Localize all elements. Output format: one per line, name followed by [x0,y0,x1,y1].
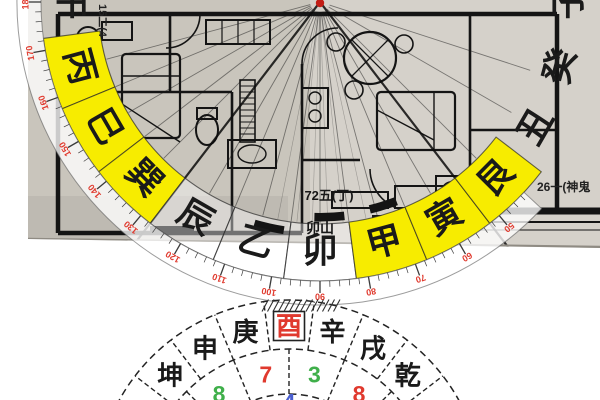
scene: 午丙巳巽辰乙卯甲寅艮丑癸子 18017016015014013012011010… [0,0,600,400]
ring-mountain-char: 子 [548,0,589,20]
chart-mountain-char: 坤 [157,361,183,391]
chart-mountain-char: 乾 [395,361,421,391]
luopan-floorplan-figure: 午丙巳巽辰乙卯甲寅艮丑癸子 18017016015014013012011010… [0,0,600,400]
degree-label: 80 [365,286,377,298]
chart-mountain-char: 辛 [319,317,345,348]
left-wall-note: 15二(4 [96,4,108,38]
star-number: 8 [213,381,226,400]
chart-mountain-char: 申 [192,335,218,365]
ring-mountain-char: 卯 [302,230,337,271]
star-number: 7 [259,361,272,387]
chart-cell-line [327,360,344,400]
right-wall-note: 26一(神鬼 [537,179,590,194]
chart-mountain-char: 戌 [360,335,386,365]
facing-direction-chart: 坤申庚酉辛戌乾87384 [95,300,483,400]
sitting-mountain-label: 卯山 [306,220,334,236]
degree-label: 180 [21,0,31,10]
chart-cell-line [234,360,251,400]
center-cross-label: 72五(丁) [304,188,353,203]
star-number: 3 [308,362,321,388]
chart-mountain-char: 庚 [233,317,259,348]
ring-mountain-char: 午 [51,0,92,20]
star-number: 4 [283,389,296,400]
star-number: 8 [353,381,366,400]
chart-mountain-char: 酉 [276,312,302,342]
